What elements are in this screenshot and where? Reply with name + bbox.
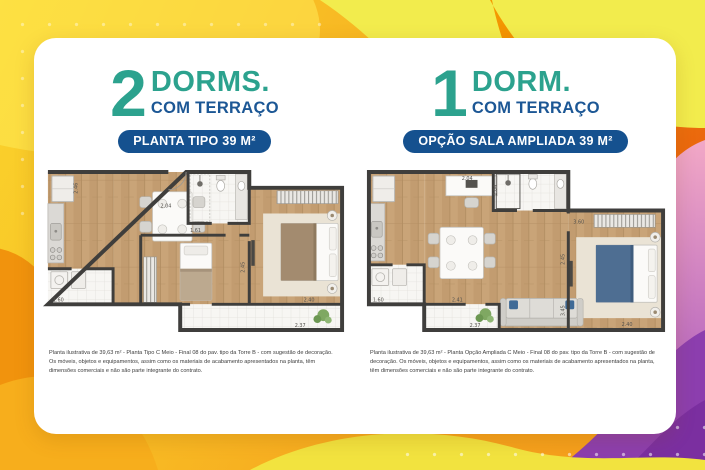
dim-sofa-side: 3.45 — [560, 305, 566, 316]
dim-terrace: 2.37 — [469, 323, 480, 329]
dim-bedroom2: 2.45 — [240, 262, 246, 273]
unit-terrace-label: COM TERRAÇO — [472, 99, 600, 118]
floorplan-1dorm: 2.04 2.04 3.60 2.45 3.45 2.41 1.60 2.37 … — [363, 166, 669, 341]
dim-bedroom1: 2.40 — [303, 297, 314, 303]
header-2dorms: 2 DORMS. COM TERRAÇO PLANTA TIPO 39 M² — [110, 64, 279, 153]
unit-area-badge: PLANTA TIPO 39 M² — [118, 130, 270, 153]
caption-disclaimer: Planta ilustrativa de 39,63 m² - Planta … — [370, 349, 661, 376]
sofa — [500, 298, 583, 326]
dim-bed: 2.40 — [621, 322, 632, 328]
dim-bath: 2.04 — [493, 185, 499, 196]
unit-terrace-label: COM TERRAÇO — [151, 99, 279, 118]
floorplan-2dorms-svg: 2.46 2.04 1.61 1.60 2.45 2.40 2.37 — [42, 166, 348, 336]
unit-area-badge: OPÇÃO SALA AMPLIADA 39 M² — [403, 130, 627, 153]
panel-1dorm: 1 DORM. COM TERRAÇO OPÇÃO SALA AMPLIADA … — [355, 38, 676, 434]
dim-service: 1.60 — [372, 297, 383, 303]
dim-living: 2.41 — [451, 297, 462, 303]
dim-wardrobe: 3.60 — [573, 219, 584, 225]
panel-2dorms: 2 DORMS. COM TERRAÇO PLANTA TIPO 39 M² — [34, 38, 355, 434]
dim-hall: 1.61 — [190, 228, 201, 234]
dim-service: 1.60 — [52, 297, 63, 303]
dim-bath: 2.04 — [160, 204, 171, 210]
dim-terrace: 2.37 — [294, 323, 305, 329]
unit-number: 2 — [110, 64, 144, 122]
header-1dorm: 1 DORM. COM TERRAÇO OPÇÃO SALA AMPLIADA … — [403, 64, 627, 153]
floorplan-2dorms: 2.46 2.04 1.61 1.60 2.45 2.40 2.37 — [42, 166, 348, 341]
dim-kitchen: 2.46 — [73, 183, 79, 194]
floorplan-1dorm-svg: 2.04 2.04 3.60 2.45 3.45 2.41 1.60 2.37 … — [363, 166, 669, 336]
floorplan-card: 2 DORMS. COM TERRAÇO PLANTA TIPO 39 M² — [34, 38, 676, 434]
caption-disclaimer: Planta ilustrativa de 39,63 m² - Planta … — [49, 349, 340, 376]
dim-bedroom-side: 2.45 — [560, 254, 566, 265]
unit-number: 1 — [431, 64, 465, 122]
unit-type-label: DORM. — [472, 68, 571, 97]
dim-top: 2.04 — [461, 176, 472, 182]
unit-type-label: DORMS. — [151, 68, 270, 97]
